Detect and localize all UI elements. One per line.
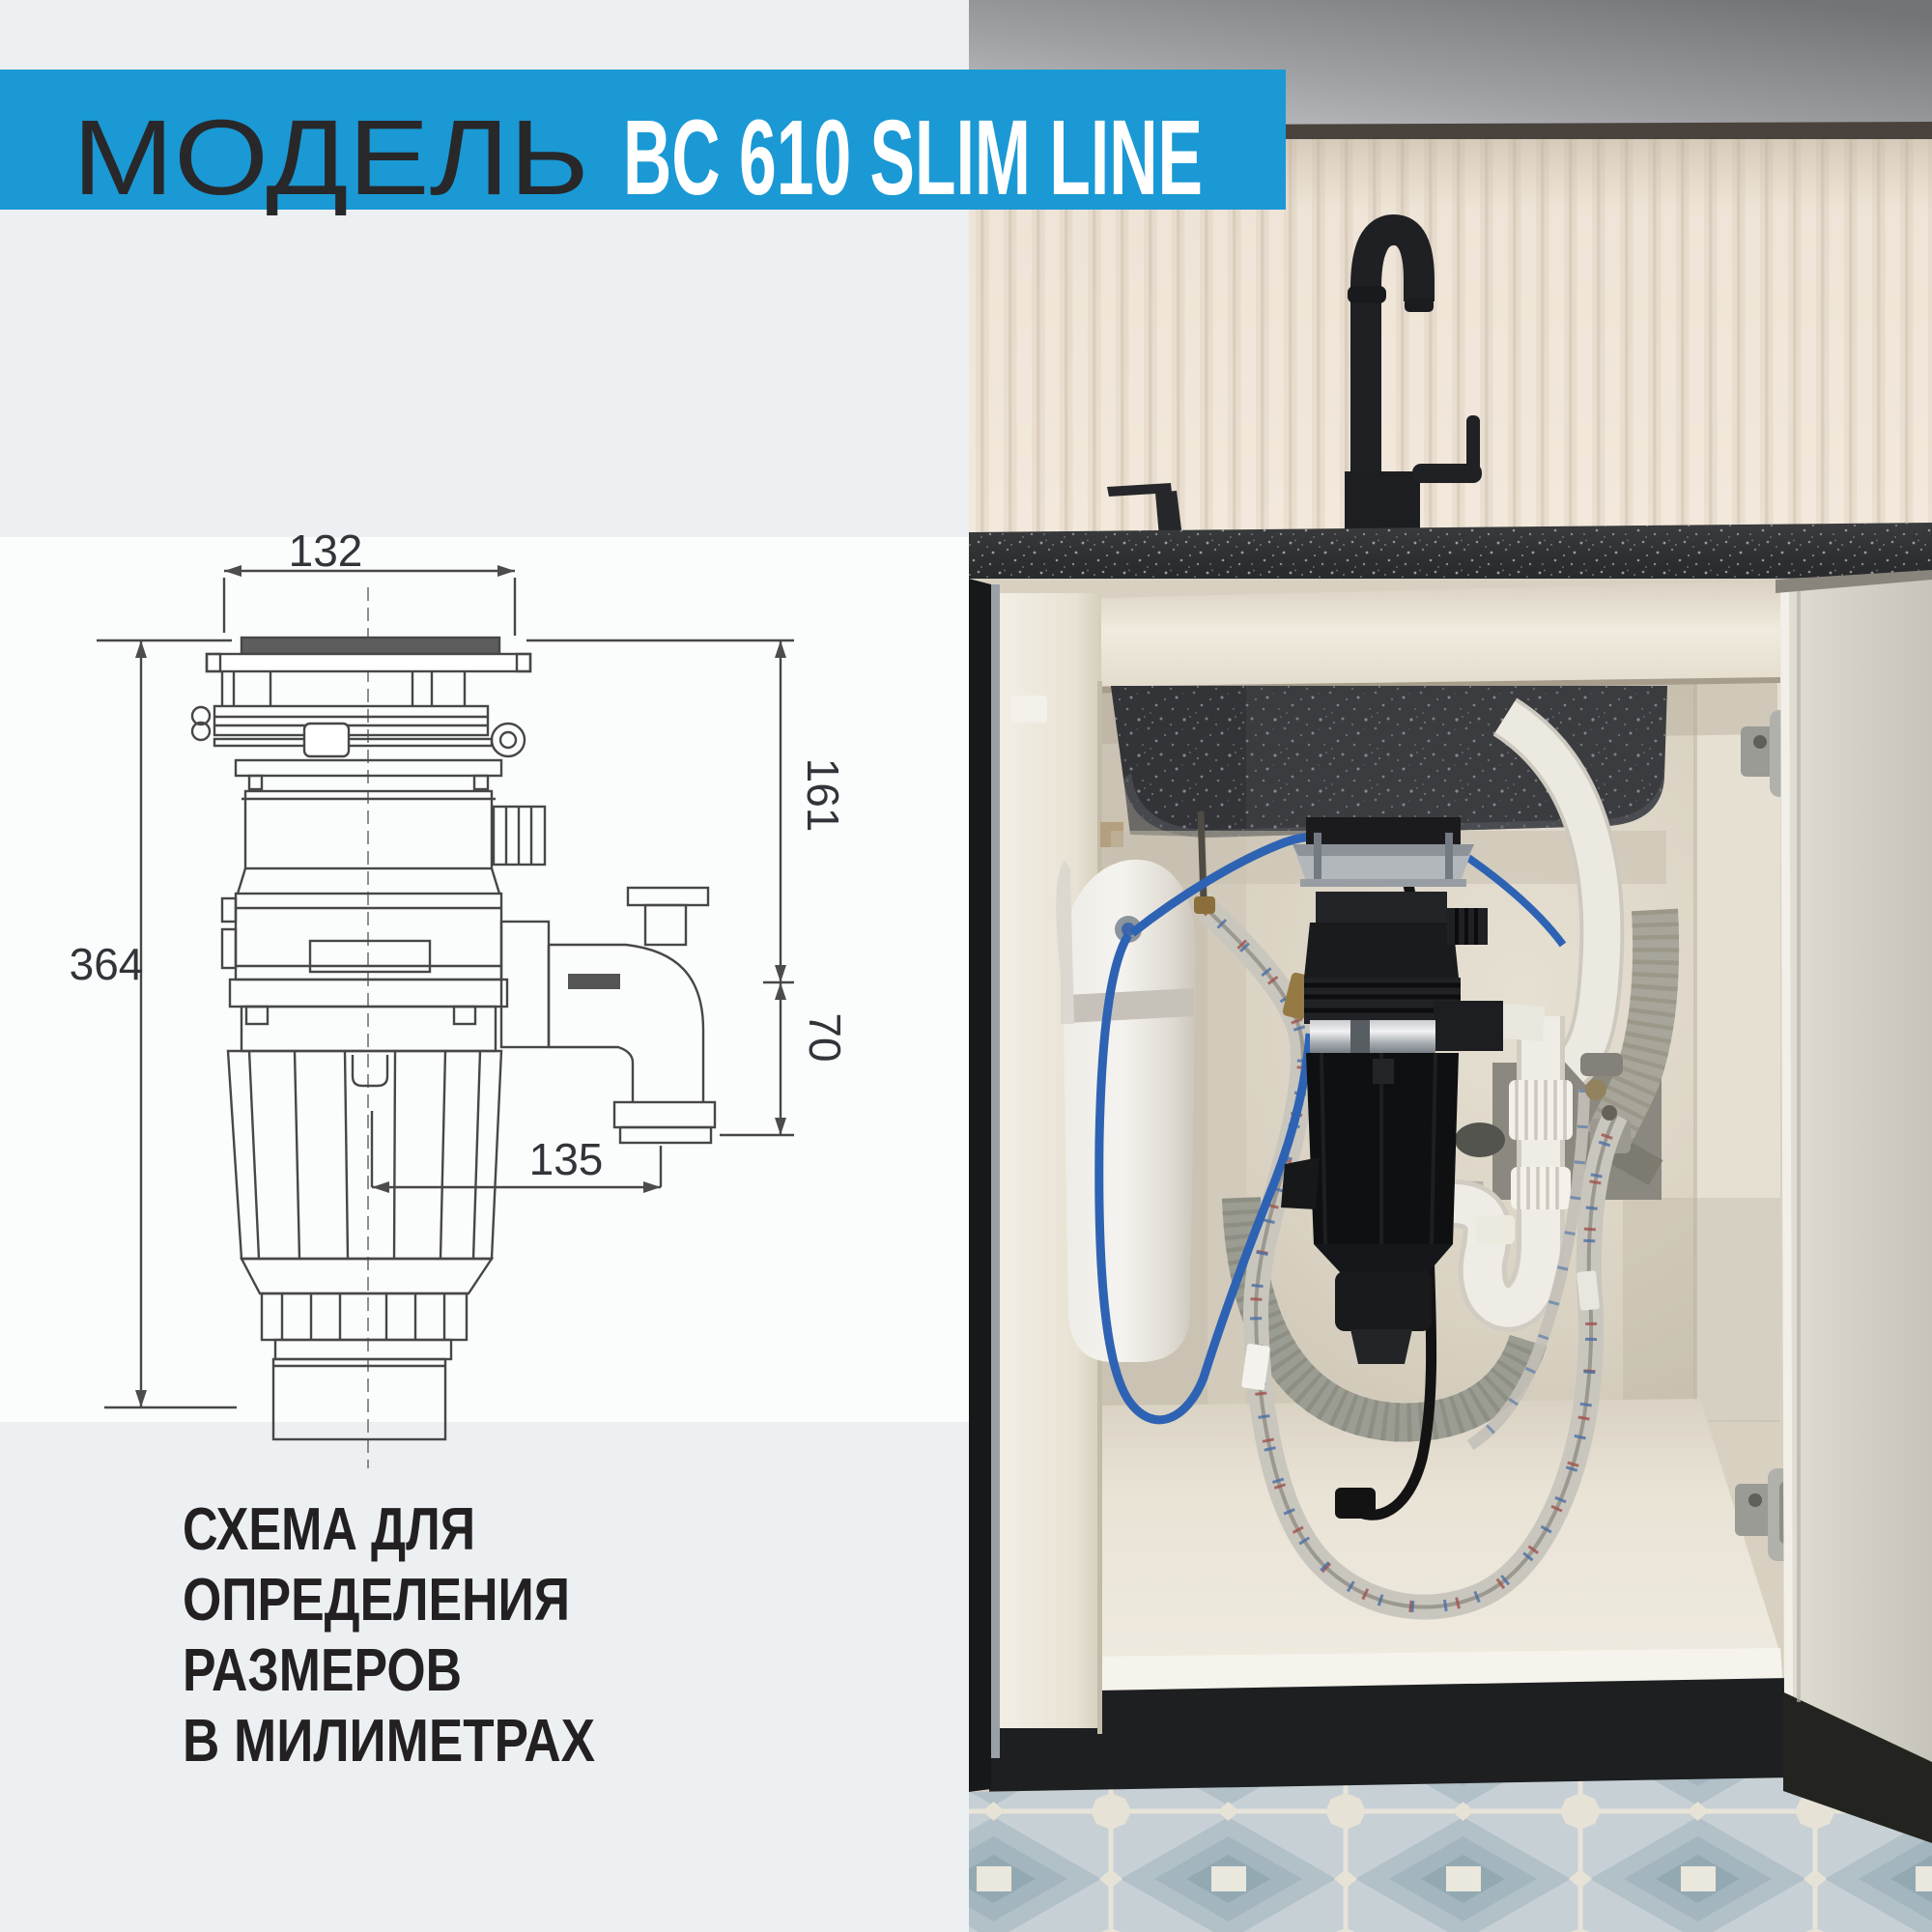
- svg-text:ОПРЕДЕЛЕНИЯ: ОПРЕДЕЛЕНИЯ: [183, 1567, 570, 1634]
- svg-text:МОДЕЛЬ: МОДЕЛЬ: [72, 99, 589, 217]
- svg-text:364: 364: [70, 939, 144, 989]
- svg-text:161: 161: [798, 758, 848, 833]
- svg-text:135: 135: [529, 1134, 604, 1184]
- svg-text:СХЕМА ДЛЯ: СХЕМА ДЛЯ: [183, 1496, 475, 1563]
- svg-text:В МИЛИМЕТРАХ: В МИЛИМЕТРАХ: [183, 1708, 595, 1775]
- svg-text:BC 610 SLIM LINE: BC 610 SLIM LINE: [623, 99, 1203, 217]
- svg-text:70: 70: [800, 1012, 850, 1062]
- svg-text:132: 132: [289, 526, 363, 576]
- svg-text:РАЗМЕРОВ: РАЗМЕРОВ: [183, 1637, 462, 1704]
